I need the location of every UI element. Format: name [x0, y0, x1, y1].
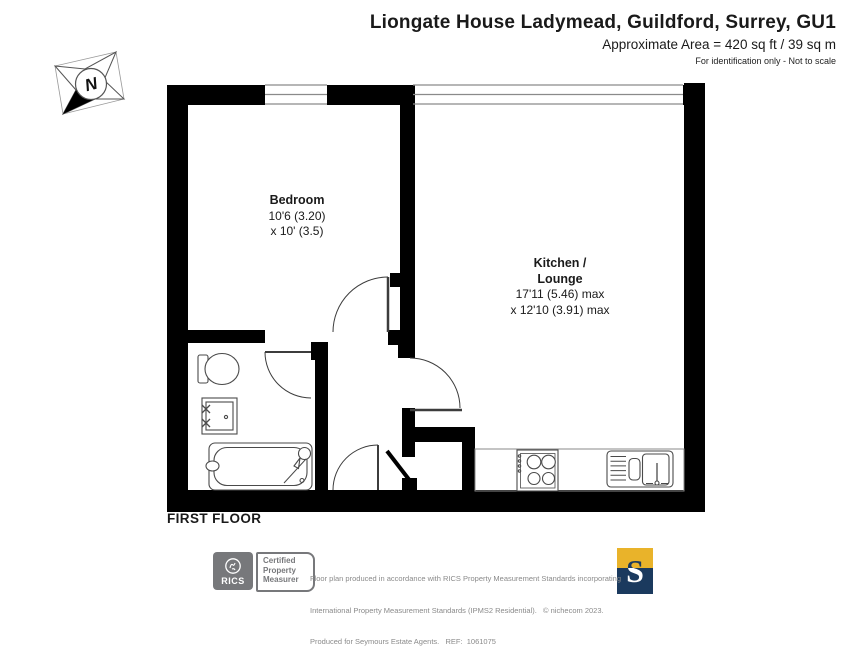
rics-brand-text: RICS — [221, 576, 245, 586]
kitchen-window — [413, 85, 683, 104]
bathroom-sink — [202, 398, 237, 434]
cert-line3: Measurer — [263, 575, 313, 585]
bedroom-dims-line1: 10'6 (3.20) — [224, 209, 370, 225]
hob — [517, 450, 558, 491]
entrance-door — [333, 445, 378, 490]
bedroom-label: Bedroom 10'6 (3.20) x 10' (3.5) — [224, 193, 370, 240]
kitchen-lounge-dims-line1: 17'11 (5.46) max — [475, 287, 645, 303]
kitchen-sink — [607, 451, 673, 487]
footer-line1: Floor plan produced in accordance with R… — [310, 574, 621, 585]
cert-line1: Certified — [263, 556, 313, 566]
wall — [684, 83, 705, 512]
header: Liongate House Ladymead, Guildford, Surr… — [370, 12, 836, 66]
floorplan-drawing: N S S — [0, 0, 849, 600]
page-title: Liongate House Ladymead, Guildford, Surr… — [370, 12, 836, 34]
approximate-area-text: Approximate Area = 420 sq ft / 39 sq m — [370, 37, 836, 52]
wall — [188, 330, 265, 343]
wall — [462, 427, 475, 493]
wall — [390, 273, 400, 287]
bathroom-door — [265, 352, 311, 398]
bedroom-window — [265, 85, 327, 104]
kitchen-lounge-name-line2: Lounge — [475, 272, 645, 288]
wall — [327, 85, 415, 105]
kitchen-lounge-name-line1: Kitchen / — [475, 256, 645, 272]
kitchen-lounge-dims-line2: x 12'10 (3.91) max — [475, 303, 645, 319]
bathroom-fixtures — [198, 354, 312, 491]
cert-line2: Property — [263, 566, 313, 576]
footer-line2: International Property Measurement Stand… — [310, 606, 621, 617]
kitchen-door — [410, 358, 462, 410]
kitchen-fixtures — [475, 449, 684, 491]
footer-disclaimer: Floor plan produced in accordance with R… — [310, 553, 621, 658]
rics-badge: RICS — [213, 552, 253, 590]
wall — [402, 408, 415, 457]
toilet — [198, 354, 239, 385]
bedroom-door — [333, 277, 388, 332]
bedroom-dims-line2: x 10' (3.5) — [224, 224, 370, 240]
kitchen-lounge-label: Kitchen / Lounge 17'11 (5.46) max x 12'1… — [475, 256, 645, 318]
disclaimer-text: For identification only - Not to scale — [370, 56, 836, 66]
wall — [167, 85, 188, 512]
certified-measurer-box: Certified Property Measurer — [256, 552, 315, 592]
compass-rose: N — [55, 52, 124, 114]
floor-label: FIRST FLOOR — [167, 511, 261, 526]
wall — [167, 490, 705, 512]
footer-line3: Produced for Seymours Estate Agents. REF… — [310, 637, 621, 648]
wall — [315, 352, 328, 493]
rics-lion-icon — [224, 557, 242, 575]
wall — [400, 105, 415, 358]
seymours-logo: S S — [617, 548, 653, 594]
bedroom-name: Bedroom — [224, 193, 370, 209]
wall — [398, 330, 415, 358]
bathtub — [206, 443, 312, 490]
